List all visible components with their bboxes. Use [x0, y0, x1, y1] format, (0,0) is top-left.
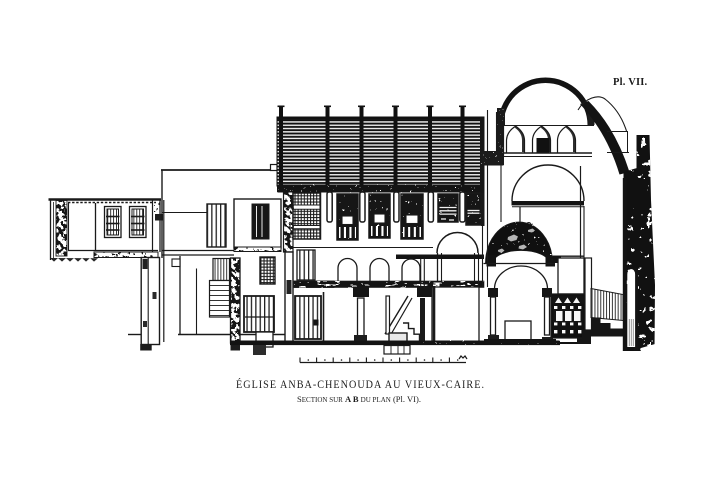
svg-text:ÉGLISE ANBA-CHENOUDA AU VIEUX-: ÉGLISE ANBA-CHENOUDA AU VIEUX-CAIRE. — [236, 377, 485, 391]
svg-text:Pl. VII.: Pl. VII. — [613, 77, 648, 88]
svg-text:SECTION SUR A B DU PLAN (Pl. V: SECTION SUR A B DU PLAN (Pl. VI). — [297, 394, 421, 404]
